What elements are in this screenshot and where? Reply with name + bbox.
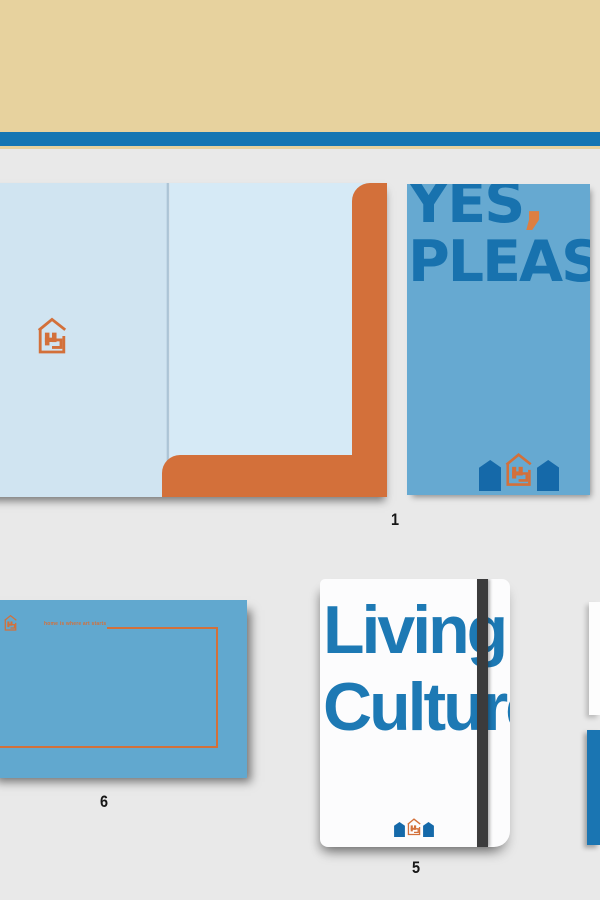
card-headline-line2: PLEASE <box>408 233 590 292</box>
house-logo-icon <box>3 614 18 631</box>
house-logo-icon <box>406 816 422 837</box>
envelope-tagline: home is where art starts <box>44 621 106 627</box>
pentagon-house-icon <box>537 459 559 492</box>
address-box-top-line <box>107 627 218 629</box>
item-number-1: 1 <box>386 510 405 530</box>
mockup-board: YES, PLEASE 1 home is where art starts 6… <box>0 0 600 900</box>
pentagon-house-icon <box>394 822 405 837</box>
accent-stripe <box>0 132 600 146</box>
partial-white-card <box>589 602 600 715</box>
folder-spine <box>166 183 170 497</box>
address-box-right-line <box>216 627 218 748</box>
card-headline: YES, PLEASE <box>408 184 590 292</box>
house-logo-icon <box>503 446 534 492</box>
header-underline <box>0 146 600 149</box>
yes-please-card: YES, PLEASE <box>407 184 590 495</box>
pentagon-house-icon <box>423 822 434 837</box>
partial-blue-card <box>587 730 600 845</box>
elastic-band <box>477 579 488 847</box>
folder-pocket-vertical <box>352 183 387 497</box>
folder-pocket-horizontal <box>162 455 387 497</box>
presentation-folder <box>0 183 387 497</box>
three-house-logo <box>479 442 559 492</box>
envelope: home is where art starts <box>0 600 247 778</box>
item-number-6: 6 <box>95 792 114 812</box>
address-box-bottom-line <box>0 746 218 748</box>
house-logo-icon <box>35 311 69 359</box>
pentagon-house-icon <box>479 459 501 492</box>
three-house-logo <box>394 815 436 837</box>
item-number-5: 5 <box>407 858 426 878</box>
notebook: Living Culture <box>320 579 510 847</box>
header-band <box>0 0 600 132</box>
card-headline-line1: YES, <box>408 184 590 233</box>
